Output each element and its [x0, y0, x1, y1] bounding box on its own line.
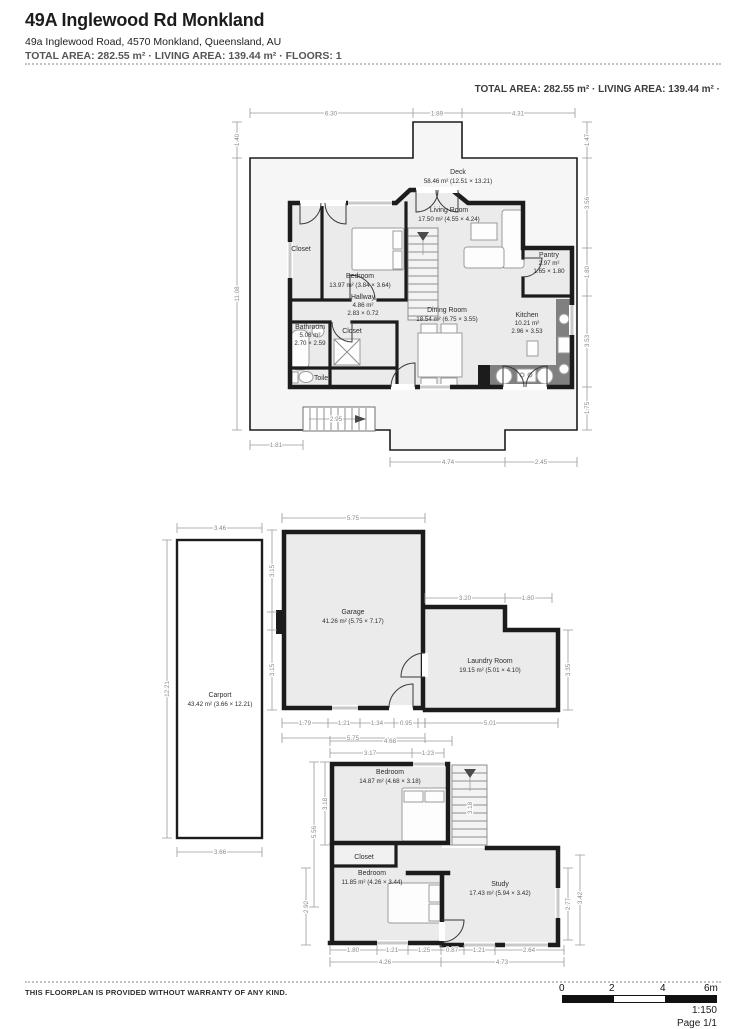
room-area-pantry: 2.97 m² — [539, 260, 560, 267]
scale-bar-segment — [563, 996, 613, 1002]
room-label-deck: Deck — [450, 169, 466, 176]
garage-side-door-block — [276, 610, 285, 634]
dim-study-right-outer: 3.42 — [577, 891, 584, 904]
floorplan-main-floor: 2.95 — [232, 108, 592, 467]
dim-main-right-2: 3.56 — [584, 196, 591, 209]
dim-carport-left: 12.21 — [164, 681, 171, 697]
room-label-laundry: Laundry Room — [467, 658, 512, 665]
toilet-fixture — [292, 372, 298, 383]
coffee-table — [471, 223, 497, 240]
property-address: 49a Inglewood Road, 4570 Monkland, Queen… — [25, 36, 281, 48]
scale-tick-2: 2 — [609, 983, 615, 994]
floorplan-bedroom-wing: 3.18 Bedroom 14.87 m² (4.68 × 3.18) Clos… — [301, 736, 585, 967]
dim-bw-top-1: 3.17 — [364, 750, 377, 757]
dim-garage-top: 5.75 — [347, 515, 360, 522]
scale-indicator: 0 2 4 6m 1:150 Page 1/1 — [562, 983, 720, 1029]
dim-study-right-inner: 2.77 — [565, 897, 572, 910]
room-label-dining: Dining Room — [427, 307, 467, 314]
room-label-bedroom2: Bedroom — [376, 769, 404, 776]
room-dims-kitchen: 2.96 × 3.53 — [511, 328, 543, 335]
room-area-bedroom2: 14.87 m² (4.68 × 3.18) — [359, 778, 420, 785]
dim-main-top-2: 1.89 — [431, 111, 444, 118]
room-area-bathroom: 5.08 m² — [300, 332, 321, 339]
dim-laundry-top-1: 3.20 — [459, 595, 472, 602]
room-area-carport: 43.42 m² (3.66 × 12.21) — [188, 701, 253, 708]
dim-bw-left-outer: 5.56 — [311, 825, 318, 838]
dim-bw-bottom-total-2: 4.73 — [496, 959, 509, 966]
dim-main-top-1: 6.30 — [325, 111, 338, 118]
room-dims-bathroom: 2.70 × 2.59 — [294, 340, 326, 347]
carport-outline — [177, 540, 262, 838]
room-label-toilet: Toilet — [314, 375, 330, 382]
bedroom-wing-stairs: 3.18 — [452, 765, 487, 845]
dim-main-bottom-1: 1.81 — [270, 442, 283, 449]
scale-bar-segment — [613, 996, 665, 1002]
room-area-deck: 58.46 m² (12.51 × 13.21) — [424, 178, 492, 185]
room-label-bedroom3: Bedroom — [358, 870, 386, 877]
scale-bar — [562, 995, 717, 1003]
room-label-hallway: Hallway — [351, 294, 376, 301]
room-label-closet-hall: Closet — [342, 328, 362, 335]
room-area-kitchen: 10.21 m² — [515, 320, 539, 327]
room-area-study: 17.43 m² (5.94 × 3.42) — [469, 890, 530, 897]
scale-tick-4: 4 — [660, 983, 666, 994]
dim-carport-top: 3.46 — [214, 525, 227, 532]
room-area-hallway: 4.86 m² — [353, 302, 374, 309]
scale-tick-0: 0 — [559, 983, 565, 994]
page-title: 49A Inglewood Rd Monkland — [25, 10, 264, 31]
scale-ratio: 1:150 — [562, 1005, 717, 1016]
dim-main-bottom-2: 4.74 — [442, 459, 455, 466]
dim-bw-bottom-total-1: 4.26 — [379, 959, 392, 966]
room-area-dining: 18.54 m² (6.75 × 3.55) — [416, 316, 477, 323]
dim-main-top-3: 4.31 — [512, 111, 525, 118]
room-label-bathroom: Bathroom — [295, 324, 325, 331]
room-label-garage: Garage — [342, 609, 365, 616]
dim-main-right-5: 1.75 — [584, 401, 591, 414]
dim-bw-bottom-4: 0.87 — [446, 947, 459, 954]
disclaimer-text: THIS FLOORPLAN IS PROVIDED WITHOUT WARRA… — [25, 988, 287, 997]
scale-tick-6m: 6m — [704, 983, 718, 994]
pantry-shelf — [527, 341, 538, 356]
dim-garage-left-1: 3.15 — [269, 564, 276, 577]
room-label-pantry: Pantry — [539, 252, 559, 259]
room-area-laundry: 19.15 m² (5.01 × 4.10) — [459, 667, 520, 674]
room-label-carport: Carport — [209, 692, 232, 699]
dim-bw-bottom-2: 1.21 — [386, 947, 399, 954]
room-label-closet2: Closet — [354, 854, 374, 861]
dim-bw-bottom-6: 2.64 — [523, 947, 536, 954]
dim-laundry-bottom: 5.01 — [484, 720, 497, 727]
dim-main-bottom-3: 2.45 — [535, 459, 548, 466]
dim-main-right-1: 1.47 — [584, 133, 591, 146]
dim-bw-bottom-3: 1.25 — [418, 947, 431, 954]
dim-bw-bottom-5: 1.21 — [473, 947, 486, 954]
dim-main-left-1: 1.40 — [234, 133, 241, 146]
room-area-garage: 41.26 m² (5.75 × 7.17) — [322, 618, 383, 625]
room-label-kitchen: Kitchen — [516, 312, 539, 319]
dim-garage-bottom-4: 0.95 — [400, 720, 413, 727]
dim-main-left-2: 11.08 — [234, 286, 241, 302]
dim-bw-bottom-1: 1.80 — [347, 947, 360, 954]
dim-garage-bottom-2: 1.21 — [338, 720, 351, 727]
room-dims-pantry: 1.65 × 1.80 — [533, 268, 565, 275]
dim-laundry-top-2: 1.80 — [522, 595, 535, 602]
room-area-bedroom3: 11.85 m² (4.26 × 3.44) — [342, 879, 403, 886]
dim-laundry-right: 3.35 — [565, 663, 572, 676]
sofa — [502, 210, 524, 268]
dim-bw-top-2: 1.23 — [422, 750, 435, 757]
area-summary: TOTAL AREA: 282.55 m² · LIVING AREA: 139… — [25, 50, 342, 62]
deck-stairs: 2.95 — [303, 407, 375, 431]
scale-bar-segment — [666, 996, 716, 1002]
dim-bw-left-inner: 3.18 — [322, 797, 329, 810]
room-dims-hallway: 2.83 × 0.72 — [347, 310, 379, 317]
dim-main-right-4: 3.53 — [584, 334, 591, 347]
dim-garage-bottom-1: 1.79 — [299, 720, 312, 727]
dim-bw-top-total: 4.68 — [384, 738, 397, 745]
dim-carport-bottom: 3.66 — [214, 849, 227, 856]
dim-garage-left-2: 3.15 — [269, 663, 276, 676]
room-label-living: Living Room — [430, 207, 469, 214]
dim-main-right-3: 1.80 — [584, 265, 591, 278]
room-label-closet-main: Closet — [291, 246, 311, 253]
dining-table — [418, 333, 462, 377]
divider-top — [25, 63, 721, 65]
dim-deck-stairs: 2.95 — [330, 416, 343, 423]
dim-bw-left-lower: 2.92 — [303, 900, 310, 913]
room-label-bedroom-main: Bedroom — [346, 273, 374, 280]
room-area-bedroom-main: 13.97 m² (3.84 × 3.64) — [329, 282, 390, 289]
dim-stairs-bedroom-wing: 3.18 — [467, 801, 474, 814]
floorplan-canvas: 2.95 — [0, 75, 746, 975]
scale-tick-labels: 0 2 4 6m — [562, 983, 720, 994]
room-area-living: 17.50 m² (4.55 × 4.24) — [418, 216, 479, 223]
room-label-study: Study — [491, 881, 509, 888]
dim-garage-bottom-3: 1.34 — [371, 720, 384, 727]
floorplan-page: { "header": { "title": "49A Inglewood Rd… — [0, 0, 746, 1024]
